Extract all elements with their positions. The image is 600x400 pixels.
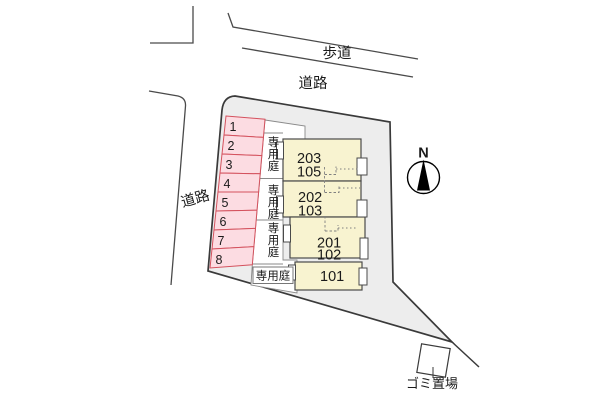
- entrance-notch: [284, 225, 291, 242]
- balcony-notch: [357, 158, 367, 175]
- road-label-top: 道路: [299, 75, 328, 92]
- parking-space-number: 1: [230, 120, 237, 134]
- balcony-notch: [359, 268, 367, 285]
- parking-space-number: 4: [224, 177, 231, 191]
- parking-space-number: 7: [218, 234, 225, 248]
- garden-label-1: 専用庭: [268, 136, 280, 173]
- parking-space-number: 5: [222, 196, 229, 210]
- unit-label-102: 102: [317, 248, 341, 264]
- parking-space-number: 6: [220, 215, 227, 229]
- garden-label-3: 専用庭: [268, 222, 280, 259]
- balcony-notch: [360, 238, 368, 259]
- garden-label-101: 専用庭: [256, 269, 291, 283]
- building-block-203-105: [283, 139, 361, 181]
- balcony-notch: [357, 200, 367, 217]
- parking-space-number: 8: [216, 253, 223, 267]
- sidewalk-label: 歩道: [323, 45, 352, 62]
- unit-label-101: 101: [320, 269, 344, 285]
- garden-label-2: 専用庭: [268, 184, 280, 221]
- parking-space-number: 2: [228, 139, 235, 153]
- garbage-label: ゴミ置場: [406, 376, 458, 391]
- unit-label-103: 103: [298, 204, 322, 220]
- unit-label-105: 105: [297, 165, 321, 181]
- parking-space-number: 3: [226, 158, 233, 172]
- north-label: N: [418, 146, 428, 162]
- site-plan: 12345678 203 105 202 103 201 102: [0, 0, 600, 400]
